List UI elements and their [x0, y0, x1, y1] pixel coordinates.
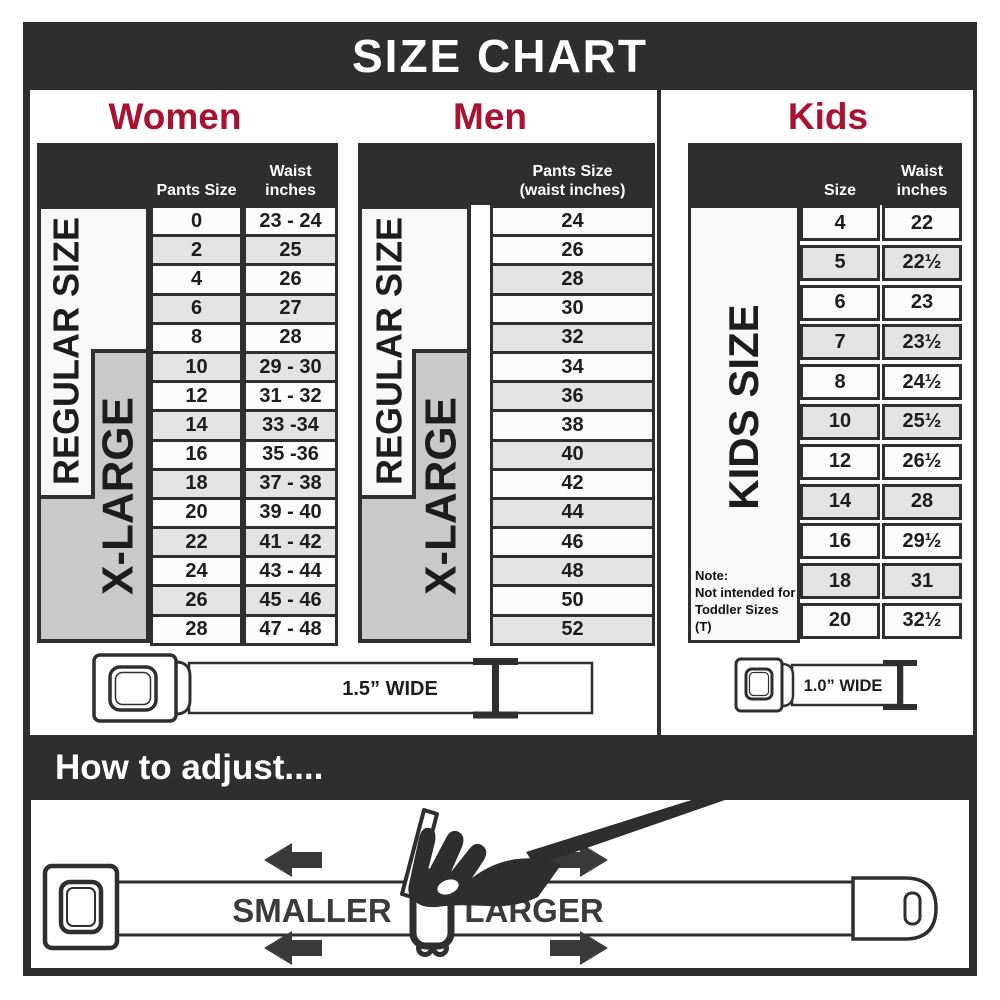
- kids-belt-width-label: 1.0” WIDE: [804, 677, 883, 695]
- table-cell: 26½: [882, 444, 962, 480]
- table-row: 422: [800, 205, 962, 241]
- women-xlarge-label: X-LARGE: [94, 397, 143, 595]
- size-chart-page: SIZE CHART Women Men Kids Pants Size Wai…: [0, 0, 1000, 1000]
- men-section-title: Men: [380, 96, 600, 138]
- men-table: Pants Size (waist inches) REGULAR SIZE X…: [358, 143, 655, 643]
- table-row: 1433 -34: [150, 409, 338, 441]
- table-row: 2039 - 40: [150, 497, 338, 529]
- table-row: 225: [150, 234, 338, 266]
- table-cell: 18: [150, 468, 243, 500]
- table-cell: 32½: [882, 603, 962, 639]
- table-row: 2847 - 48: [150, 614, 338, 646]
- women-col-waist-line2: inches: [265, 182, 316, 199]
- table-cell: 48: [490, 555, 655, 587]
- table-row: 1831: [800, 563, 962, 599]
- men-table-header: Pants Size (waist inches): [358, 143, 655, 205]
- kids-buckle-latch: [782, 664, 793, 706]
- table-cell: 6: [800, 285, 880, 321]
- smaller-label: SMALLER: [232, 892, 392, 929]
- table-cell: 28: [243, 322, 338, 354]
- kids-col-size: Size: [800, 181, 880, 200]
- table-cell: 14: [800, 484, 880, 520]
- table-cell: 18: [800, 563, 880, 599]
- women-rows: 023 - 242254266278281029 - 301231 - 3214…: [150, 205, 338, 646]
- table-cell: 24½: [882, 364, 962, 400]
- table-cell: 31: [882, 563, 962, 599]
- table-cell: 28: [150, 614, 243, 646]
- table-cell: 0: [150, 205, 243, 237]
- table-row: 1428: [800, 484, 962, 520]
- table-cell: 6: [150, 293, 243, 325]
- table-cell: 8: [800, 364, 880, 400]
- table-row: 2032½: [800, 603, 962, 639]
- women-col-waist: Waist inches: [243, 162, 338, 200]
- table-cell: 31 - 32: [243, 380, 338, 412]
- table-cell: 20: [800, 603, 880, 639]
- kids-belt-icon: 1.0” WIDE: [733, 656, 923, 716]
- belt-tip: [853, 878, 936, 939]
- table-row: 627: [150, 293, 338, 325]
- page-title: SIZE CHART: [352, 29, 648, 83]
- table-row: 50: [490, 584, 655, 616]
- table-row: 623: [800, 285, 962, 321]
- adult-buckle-inner: [110, 667, 156, 710]
- table-cell: 36: [490, 380, 655, 412]
- table-cell: 27: [243, 293, 338, 325]
- table-cell: 33 -34: [243, 409, 338, 441]
- table-row: 44: [490, 497, 655, 529]
- table-cell: 4: [150, 263, 243, 295]
- diagram-buckle-icon: [45, 866, 117, 948]
- table-row: 34: [490, 351, 655, 383]
- table-cell: 25: [243, 234, 338, 266]
- table-row: 1231 - 32: [150, 380, 338, 412]
- table-cell: 29 - 30: [243, 351, 338, 383]
- adjust-title: How to adjust....: [55, 748, 323, 788]
- table-row: 46: [490, 526, 655, 558]
- table-cell: 23 - 24: [243, 205, 338, 237]
- table-cell: 37 - 38: [243, 468, 338, 500]
- table-cell: 16: [800, 523, 880, 559]
- table-row: 1226½: [800, 444, 962, 480]
- table-cell: 5: [800, 245, 880, 281]
- table-row: 24: [490, 205, 655, 237]
- table-row: 40: [490, 439, 655, 471]
- table-cell: 42: [490, 468, 655, 500]
- table-row: 32: [490, 322, 655, 354]
- table-cell: 26: [243, 263, 338, 295]
- table-cell: 12: [150, 380, 243, 412]
- women-regular-size-label: REGULAR SIZE: [46, 217, 87, 485]
- table-cell: 30: [490, 293, 655, 325]
- women-section-title: Women: [60, 96, 290, 138]
- table-cell: 35 -36: [243, 439, 338, 471]
- table-row: 42: [490, 468, 655, 500]
- adult-belt-icon: 1.5” WIDE: [90, 652, 600, 724]
- women-col-waist-line1: Waist: [269, 163, 311, 180]
- table-row: 723½: [800, 324, 962, 360]
- table-cell: 28: [490, 263, 655, 295]
- men-col-line2: (waist inches): [520, 182, 626, 199]
- table-cell: 22: [150, 526, 243, 558]
- table-cell: 52: [490, 614, 655, 646]
- table-cell: 25½: [882, 404, 962, 440]
- table-row: 2241 - 42: [150, 526, 338, 558]
- men-col-line1: Pants Size: [532, 163, 612, 180]
- men-rows: 242628303234363840424446485052: [490, 205, 655, 646]
- belt-tip-slot: [905, 893, 920, 924]
- table-cell: 39 - 40: [243, 497, 338, 529]
- table-cell: 46: [490, 526, 655, 558]
- kids-note-line2: Not intended for: [695, 585, 795, 600]
- kids-note-line3: Toddler Sizes (T): [695, 602, 779, 634]
- table-row: 52: [490, 614, 655, 646]
- table-row: 2645 - 46: [150, 584, 338, 616]
- table-cell: 23: [882, 285, 962, 321]
- table-cell: 26: [150, 584, 243, 616]
- table-cell: 23½: [882, 324, 962, 360]
- men-size-bands: REGULAR SIZE X-LARGE: [358, 205, 490, 643]
- table-cell: 22: [882, 205, 962, 241]
- table-cell: 38: [490, 409, 655, 441]
- adjust-diagram: SMALLER LARGER: [23, 800, 977, 976]
- adult-buckle-latch: [176, 662, 190, 714]
- table-row: 824½: [800, 364, 962, 400]
- table-cell: 47 - 48: [243, 614, 338, 646]
- table-cell: 28: [882, 484, 962, 520]
- title-bar: SIZE CHART: [23, 22, 977, 90]
- kids-section-title: Kids: [718, 96, 938, 138]
- table-cell: 24: [150, 555, 243, 587]
- table-cell: 26: [490, 234, 655, 266]
- table-cell: 50: [490, 584, 655, 616]
- kids-rows: 422522½623723½824½1025½1226½14281629½183…: [800, 205, 962, 639]
- table-row: 28: [490, 263, 655, 295]
- table-cell: 43 - 44: [243, 555, 338, 587]
- table-cell: 24: [490, 205, 655, 237]
- kids-col-waist-line2: inches: [897, 182, 948, 199]
- kids-size-band: KIDS SIZE Note: Not intended for Toddler…: [688, 205, 800, 643]
- kids-col-waist: Waist inches: [882, 162, 962, 200]
- table-cell: 2: [150, 234, 243, 266]
- table-row: 426: [150, 263, 338, 295]
- kids-table-header: Size Waist inches: [688, 143, 962, 205]
- table-cell: 32: [490, 322, 655, 354]
- table-cell: 34: [490, 351, 655, 383]
- men-col-pants-size: Pants Size (waist inches): [490, 162, 655, 200]
- table-cell: 12: [800, 444, 880, 480]
- table-row: 48: [490, 555, 655, 587]
- table-row: 1029 - 30: [150, 351, 338, 383]
- table-cell: 22½: [882, 245, 962, 281]
- table-cell: 4: [800, 205, 880, 241]
- table-row: 36: [490, 380, 655, 412]
- table-cell: 41 - 42: [243, 526, 338, 558]
- table-cell: 8: [150, 322, 243, 354]
- adult-belt-width-label: 1.5” WIDE: [342, 678, 438, 700]
- women-col-pants-size: Pants Size: [150, 181, 243, 200]
- men-regular-size-label: REGULAR SIZE: [369, 217, 410, 485]
- table-row: 30: [490, 293, 655, 325]
- kids-col-waist-line1: Waist: [901, 163, 943, 180]
- women-size-bands: REGULAR SIZE X-LARGE: [37, 205, 150, 643]
- table-cell: 44: [490, 497, 655, 529]
- table-row: 828: [150, 322, 338, 354]
- table-cell: 20: [150, 497, 243, 529]
- adjust-title-bar: How to adjust....: [23, 735, 977, 800]
- women-table: Pants Size Waist inches REGULAR SIZE X-L…: [37, 143, 338, 643]
- table-row: 38: [490, 409, 655, 441]
- kids-note-line1: Note:: [695, 568, 728, 583]
- table-row: 1837 - 38: [150, 468, 338, 500]
- table-row: 023 - 24: [150, 205, 338, 237]
- table-cell: 16: [150, 439, 243, 471]
- table-row: 26: [490, 234, 655, 266]
- table-cell: 29½: [882, 523, 962, 559]
- table-cell: 7: [800, 324, 880, 360]
- table-row: 1635 -36: [150, 439, 338, 471]
- table-cell: 14: [150, 409, 243, 441]
- table-row: 522½: [800, 245, 962, 281]
- table-row: 1629½: [800, 523, 962, 559]
- kids-table: Size Waist inches KIDS SIZE Note: Not in…: [688, 143, 962, 643]
- table-cell: 10: [150, 351, 243, 383]
- panel-divider: [657, 90, 661, 735]
- table-cell: 45 - 46: [243, 584, 338, 616]
- men-xlarge-label: X-LARGE: [417, 397, 466, 595]
- kids-size-label: KIDS SIZE: [720, 304, 768, 509]
- kids-note: Note: Not intended for Toddler Sizes (T): [695, 567, 797, 635]
- table-row: 1025½: [800, 404, 962, 440]
- table-cell: 10: [800, 404, 880, 440]
- women-table-header: Pants Size Waist inches: [37, 143, 338, 205]
- table-row: 2443 - 44: [150, 555, 338, 587]
- table-cell: 40: [490, 439, 655, 471]
